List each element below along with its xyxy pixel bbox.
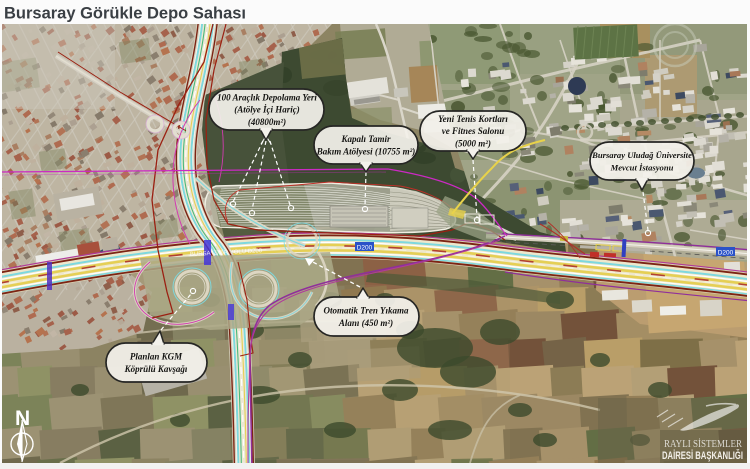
svg-text:Bursaray Görükle Depo Sahası: Bursaray Görükle Depo Sahası [4,4,246,23]
svg-text:Kapalı Tamir: Kapalı Tamir [341,134,391,144]
svg-text:100 Araçlık Depolama Yeri: 100 Araçlık Depolama Yeri [217,92,317,102]
svg-text:Yeni Tenis Kortları: Yeni Tenis Kortları [438,114,508,124]
svg-text:(40800m²): (40800m²) [248,117,286,127]
svg-text:D200: D200 [357,244,373,251]
svg-text:Otomatik Tren Yıkama: Otomatik Tren Yıkama [323,306,409,316]
svg-text:Mevcut İstasyonu: Mevcut İstasyonu [610,162,674,172]
svg-text:Bakım Atölyesi (10755 m²): Bakım Atölyesi (10755 m²) [316,146,416,156]
svg-text:DAİRESİ BAŞKANLIĞI: DAİRESİ BAŞKANLIĞI [662,449,743,462]
svg-text:Köprülü Kavşağı: Köprülü Kavşağı [124,364,188,374]
svg-text:ve Fitnes Salonu: ve Fitnes Salonu [442,126,505,136]
svg-text:N: N [15,407,30,430]
svg-text:(Atölye İçi Hariç): (Atölye İçi Hariç) [234,105,299,115]
svg-text:Alanı (450 m²): Alanı (450 m²) [338,318,393,328]
svg-text:Planlan KGM: Planlan KGM [130,352,183,362]
svg-text:RAYLI SİSTEMLER: RAYLI SİSTEMLER [664,438,742,450]
svg-text:Bursaray Uludağ Üniversite: Bursaray Uludağ Üniversite [591,150,692,160]
svg-text:D200: D200 [718,249,734,256]
svg-text:(5000 m²): (5000 m²) [455,139,491,149]
